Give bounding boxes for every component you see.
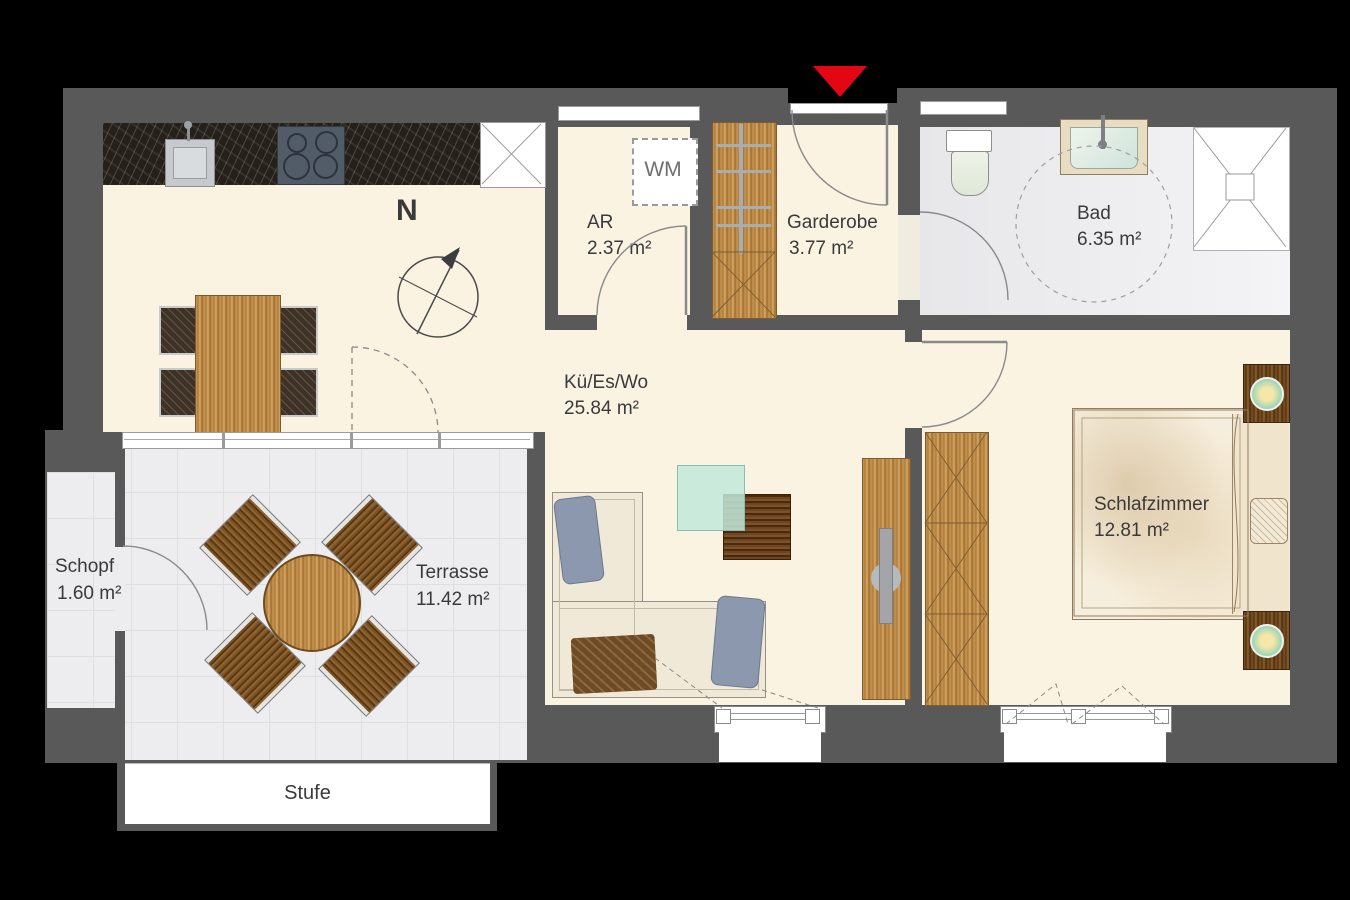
terrace-window-line: [124, 439, 530, 440]
entrance-arrow-icon: [813, 66, 867, 97]
door-opening-ar: [597, 315, 687, 330]
wardrobe-rail: [716, 206, 771, 209]
hall-wardrobe: [712, 122, 777, 319]
window-bedroom-sill: [1004, 732, 1166, 762]
bath-faucet-dot: [1098, 140, 1107, 149]
room-area-ar: 2.37 m²: [587, 236, 651, 262]
shaft: [480, 122, 546, 188]
window-living-sill: [719, 732, 821, 762]
room-area-terrasse: 11.42 m²: [416, 587, 490, 613]
dining-table: [195, 295, 281, 433]
room-label-schlafzimmer: Schlafzimmer: [1094, 492, 1209, 518]
sofa-pillow: [710, 595, 766, 689]
north-label: N: [396, 198, 418, 224]
room-label-bad: Bad: [1077, 201, 1111, 227]
room-area-schopf: 1.60 m²: [57, 581, 121, 607]
terrace-table: [263, 554, 361, 652]
washing-machine-label: WM: [632, 138, 694, 202]
room-area-kueswo: 25.84 m²: [564, 396, 639, 422]
dining-chair: [277, 368, 318, 417]
step-label: Stufe: [125, 780, 490, 806]
bed-pillow: [1250, 498, 1288, 544]
room-area-garderobe: 3.77 m²: [789, 236, 853, 262]
door-opening-bad: [898, 215, 920, 300]
room-area-schlafzimmer: 12.81 m²: [1094, 518, 1169, 544]
lamp-icon: [1250, 377, 1284, 411]
burner-icon: [287, 133, 307, 153]
window-end-block: [805, 709, 820, 724]
door-opening-schlafzimmer: [905, 342, 922, 428]
room-label-kueswo: Kü/Es/Wo: [564, 370, 648, 396]
dining-chair: [159, 368, 200, 417]
coffee-table-glass: [677, 465, 745, 531]
room-label-terrasse: Terrasse: [416, 560, 489, 586]
wardrobe-rail: [716, 224, 771, 227]
kitchen-faucet-dot: [184, 121, 192, 129]
room-label-schopf: Schopf: [55, 554, 114, 580]
window-mullion: [438, 432, 441, 448]
window-mullion: [350, 432, 353, 448]
floor-plan: WM Stufe: [0, 0, 1350, 900]
window-bad-top: [920, 101, 1007, 115]
toilet-tank: [946, 130, 992, 152]
sofa-throw: [571, 634, 658, 694]
terrace-window-band: [122, 432, 534, 449]
shower: [1193, 127, 1290, 251]
burner-icon: [315, 131, 338, 154]
window-ar-top: [558, 106, 700, 121]
kitchen-sink-bowl: [173, 147, 207, 179]
room-label-garderobe: Garderobe: [787, 210, 878, 236]
bedroom-wardrobe: [925, 432, 989, 706]
entrance-threshold: [790, 103, 888, 114]
toilet-bowl: [951, 151, 989, 196]
wardrobe-rail: [716, 170, 771, 173]
window-mullion: [222, 432, 225, 448]
dining-chair: [277, 306, 318, 355]
window-end-block: [1154, 709, 1169, 724]
room-area-bad: 6.35 m²: [1077, 227, 1141, 253]
tv-bar: [879, 528, 893, 624]
wardrobe-rail: [716, 144, 771, 147]
window-end-block: [1071, 709, 1086, 724]
window-end-block: [716, 709, 731, 724]
window-end-block: [1002, 709, 1017, 724]
room-label-ar: AR: [587, 210, 613, 236]
burner-icon: [313, 154, 338, 179]
burner-icon: [283, 153, 310, 180]
lamp-icon: [1250, 624, 1284, 658]
dining-chair: [159, 306, 200, 355]
